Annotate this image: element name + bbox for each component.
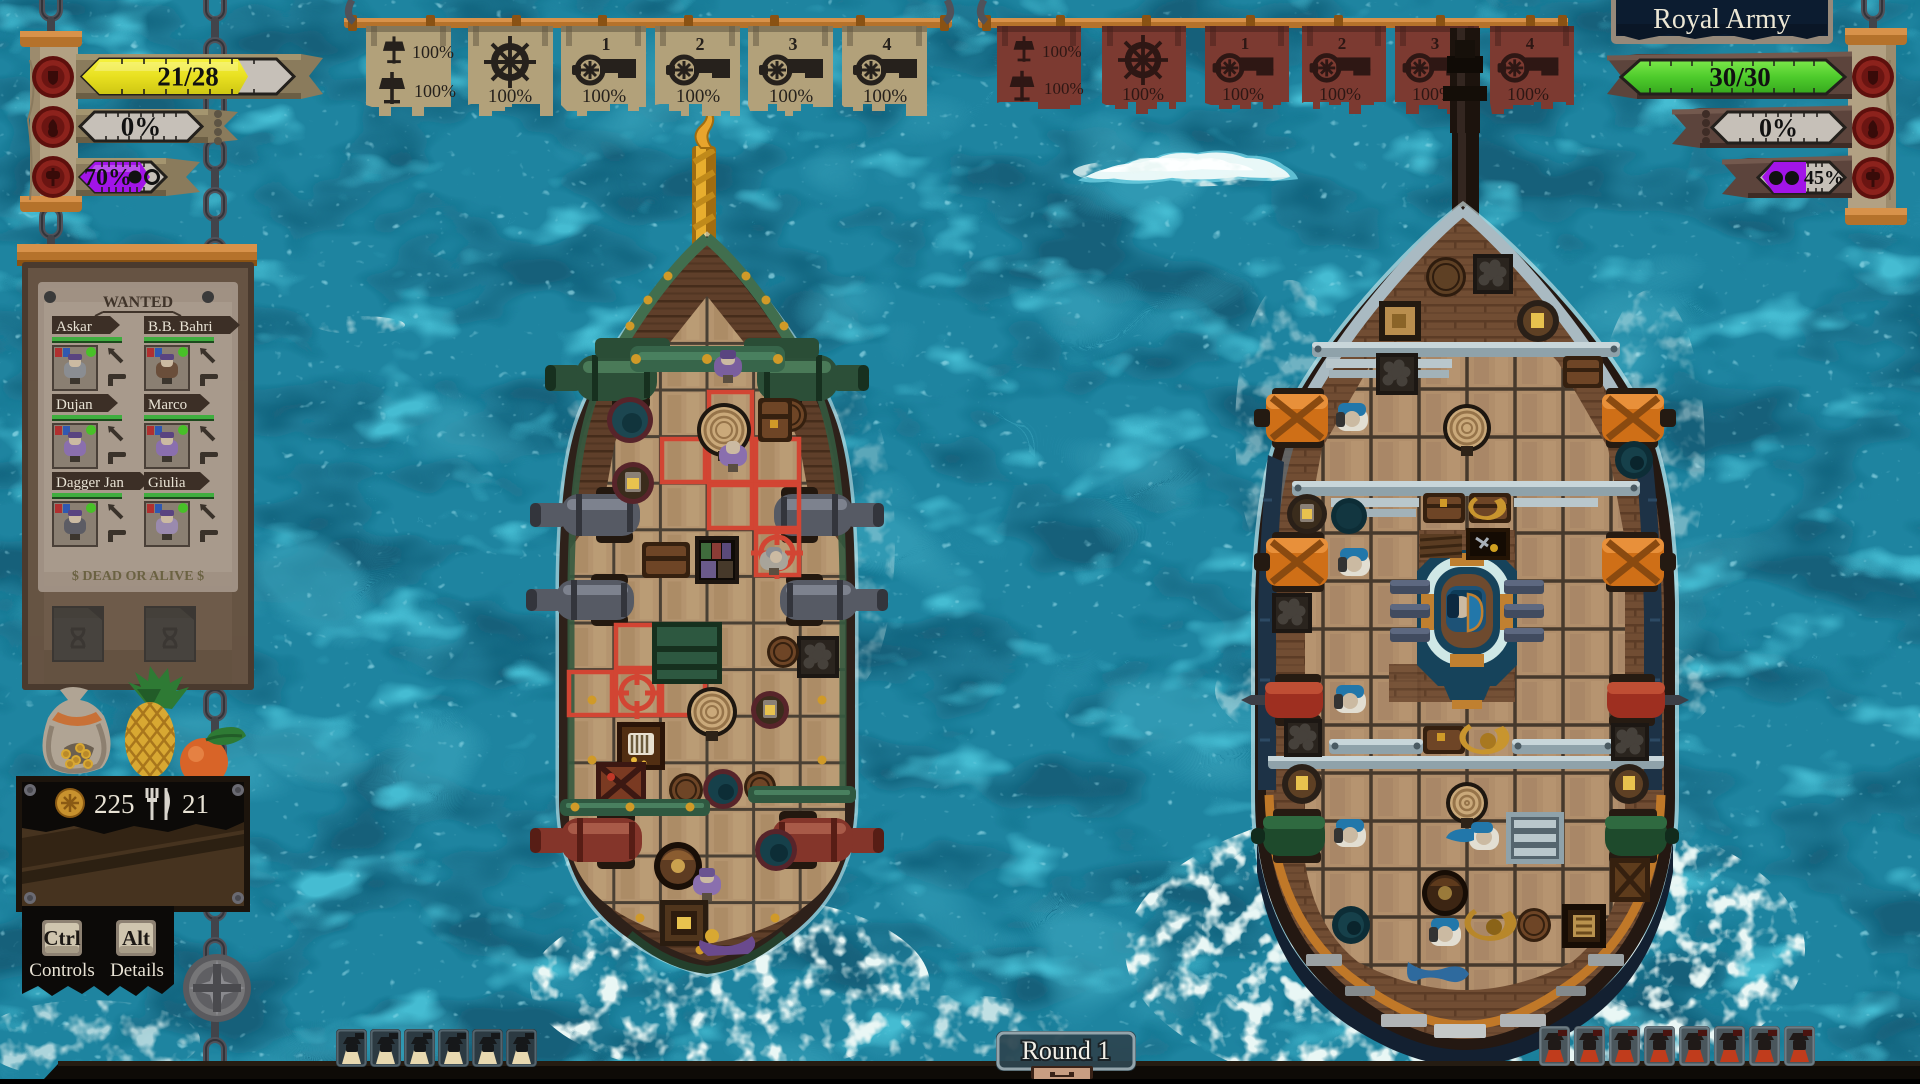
svg-text:Askar: Askar	[56, 319, 92, 335]
svg-text:Giulia: Giulia	[148, 475, 186, 491]
svg-text:100%: 100%	[1042, 42, 1082, 61]
svg-text:100%: 100%	[488, 86, 533, 107]
svg-text:Dagger Jan: Dagger Jan	[56, 475, 124, 491]
svg-text:Marco: Marco	[148, 397, 187, 413]
svg-text:21: 21	[182, 789, 209, 819]
svg-text:0%: 0%	[121, 112, 162, 142]
svg-text:100%: 100%	[1044, 79, 1084, 98]
svg-text:0%: 0%	[1759, 114, 1798, 143]
svg-text:1: 1	[1241, 34, 1250, 53]
svg-text:$ DEAD OR ALIVE $: $ DEAD OR ALIVE $	[72, 569, 204, 584]
svg-text:100%: 100%	[1319, 84, 1361, 104]
svg-text:100%: 100%	[1122, 84, 1164, 104]
svg-text:2: 2	[1338, 34, 1347, 53]
svg-text:100%: 100%	[412, 42, 454, 62]
svg-text:100%: 100%	[676, 86, 721, 107]
svg-text:100%: 100%	[769, 86, 814, 107]
svg-text:70%: 70%	[84, 165, 132, 191]
svg-text:1: 1	[602, 34, 611, 54]
svg-text:4: 4	[1526, 34, 1535, 53]
svg-text:2: 2	[696, 34, 705, 54]
svg-text:21/28: 21/28	[157, 62, 219, 92]
svg-text:100%: 100%	[1507, 84, 1549, 104]
svg-text:45%: 45%	[1804, 167, 1844, 189]
svg-text:100%: 100%	[863, 86, 908, 107]
svg-text:Round 1: Round 1	[1022, 1036, 1111, 1065]
svg-text:3: 3	[789, 34, 798, 54]
svg-text:Controls: Controls	[29, 960, 94, 981]
svg-text:Details: Details	[110, 960, 164, 981]
svg-text:100%: 100%	[1222, 84, 1264, 104]
svg-text:Ctrl: Ctrl	[43, 926, 80, 950]
svg-text:WANTED: WANTED	[103, 294, 173, 311]
svg-text:3: 3	[1431, 34, 1440, 53]
svg-text:Royal Army: Royal Army	[1653, 4, 1791, 35]
svg-text:100%: 100%	[414, 81, 456, 101]
svg-text:30/30: 30/30	[1709, 62, 1771, 92]
svg-text:B.B. Bahri: B.B. Bahri	[148, 319, 213, 335]
svg-text:Dujan: Dujan	[56, 397, 93, 413]
svg-text:Alt: Alt	[122, 926, 150, 950]
svg-text:100%: 100%	[582, 86, 627, 107]
svg-text:4: 4	[883, 34, 892, 54]
svg-text:225: 225	[94, 789, 135, 819]
